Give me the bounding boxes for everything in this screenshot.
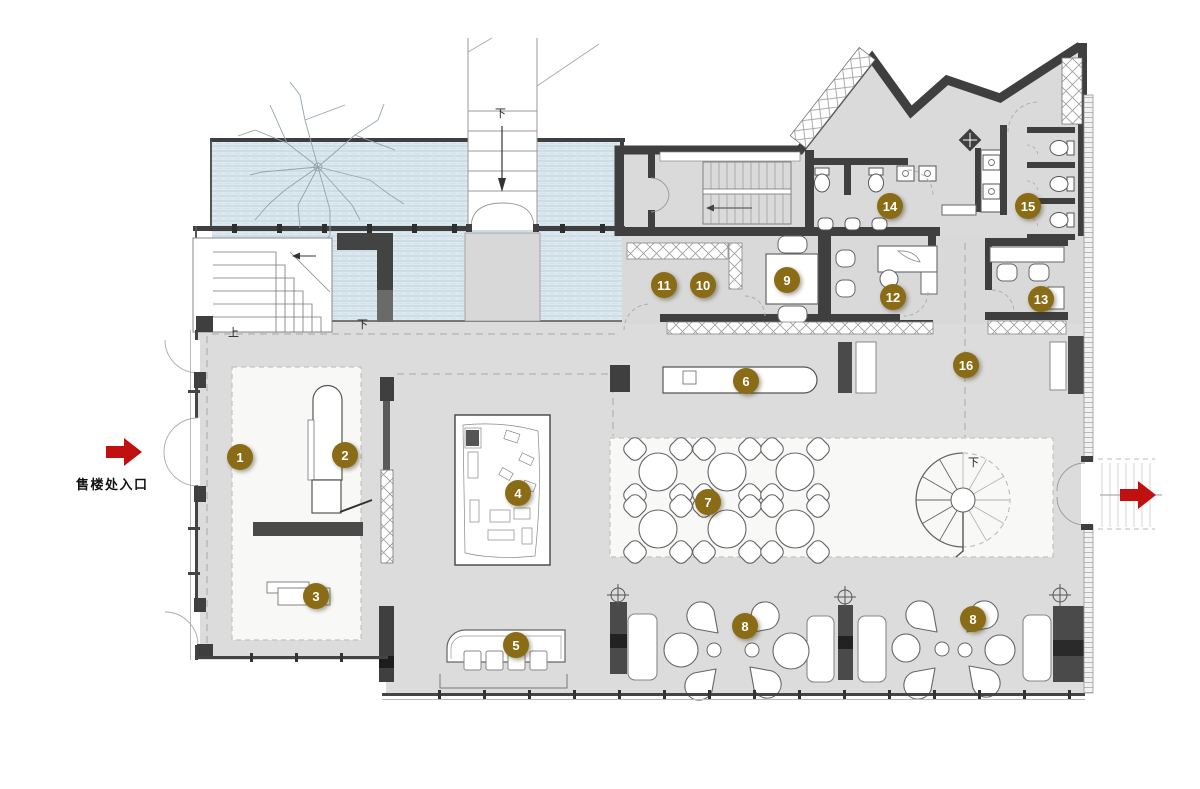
marker-12: 12 bbox=[880, 284, 906, 310]
entrance-arrow-icon bbox=[106, 438, 142, 466]
marker-11: 11 bbox=[651, 272, 677, 298]
floor-plan-drawing bbox=[0, 0, 1200, 789]
entrance-label: 售楼处入口 bbox=[76, 474, 149, 493]
corridor-16-bench bbox=[1050, 336, 1088, 394]
exit-arrow-icon bbox=[1120, 481, 1156, 509]
marker-6: 6 bbox=[733, 368, 759, 394]
marker-10: 10 bbox=[690, 272, 716, 298]
stair-down-label-top: 下 bbox=[495, 105, 506, 121]
marker-7: 7 bbox=[695, 489, 721, 515]
stair-down-label-spiral: 下 bbox=[968, 454, 979, 470]
marker-4: 4 bbox=[505, 480, 531, 506]
marker-14: 14 bbox=[877, 193, 903, 219]
lobby-bench bbox=[253, 522, 363, 536]
corridor-cabinet-hatch bbox=[667, 322, 933, 334]
stair-down-label-mid: 下 bbox=[357, 316, 368, 332]
marker-9: 9 bbox=[774, 267, 800, 293]
marker-8-right: 8 bbox=[960, 606, 986, 632]
marker-15: 15 bbox=[1015, 193, 1041, 219]
model-table-4 bbox=[455, 415, 550, 565]
stair-up-label-left: 上 bbox=[228, 324, 239, 340]
marker-16: 16 bbox=[953, 352, 979, 378]
left-stair bbox=[193, 238, 332, 332]
stair-landing bbox=[465, 233, 540, 321]
marker-1: 1 bbox=[227, 444, 253, 470]
marker-3: 3 bbox=[303, 583, 329, 609]
marker-2: 2 bbox=[332, 442, 358, 468]
marker-5: 5 bbox=[503, 632, 529, 658]
marker-8-left: 8 bbox=[732, 613, 758, 639]
floor-plan-canvas: 售楼处入口 下 上 下 下 1 2 3 4 5 6 7 8 8 9 10 11 … bbox=[0, 0, 1200, 789]
marker-13: 13 bbox=[1028, 286, 1054, 312]
